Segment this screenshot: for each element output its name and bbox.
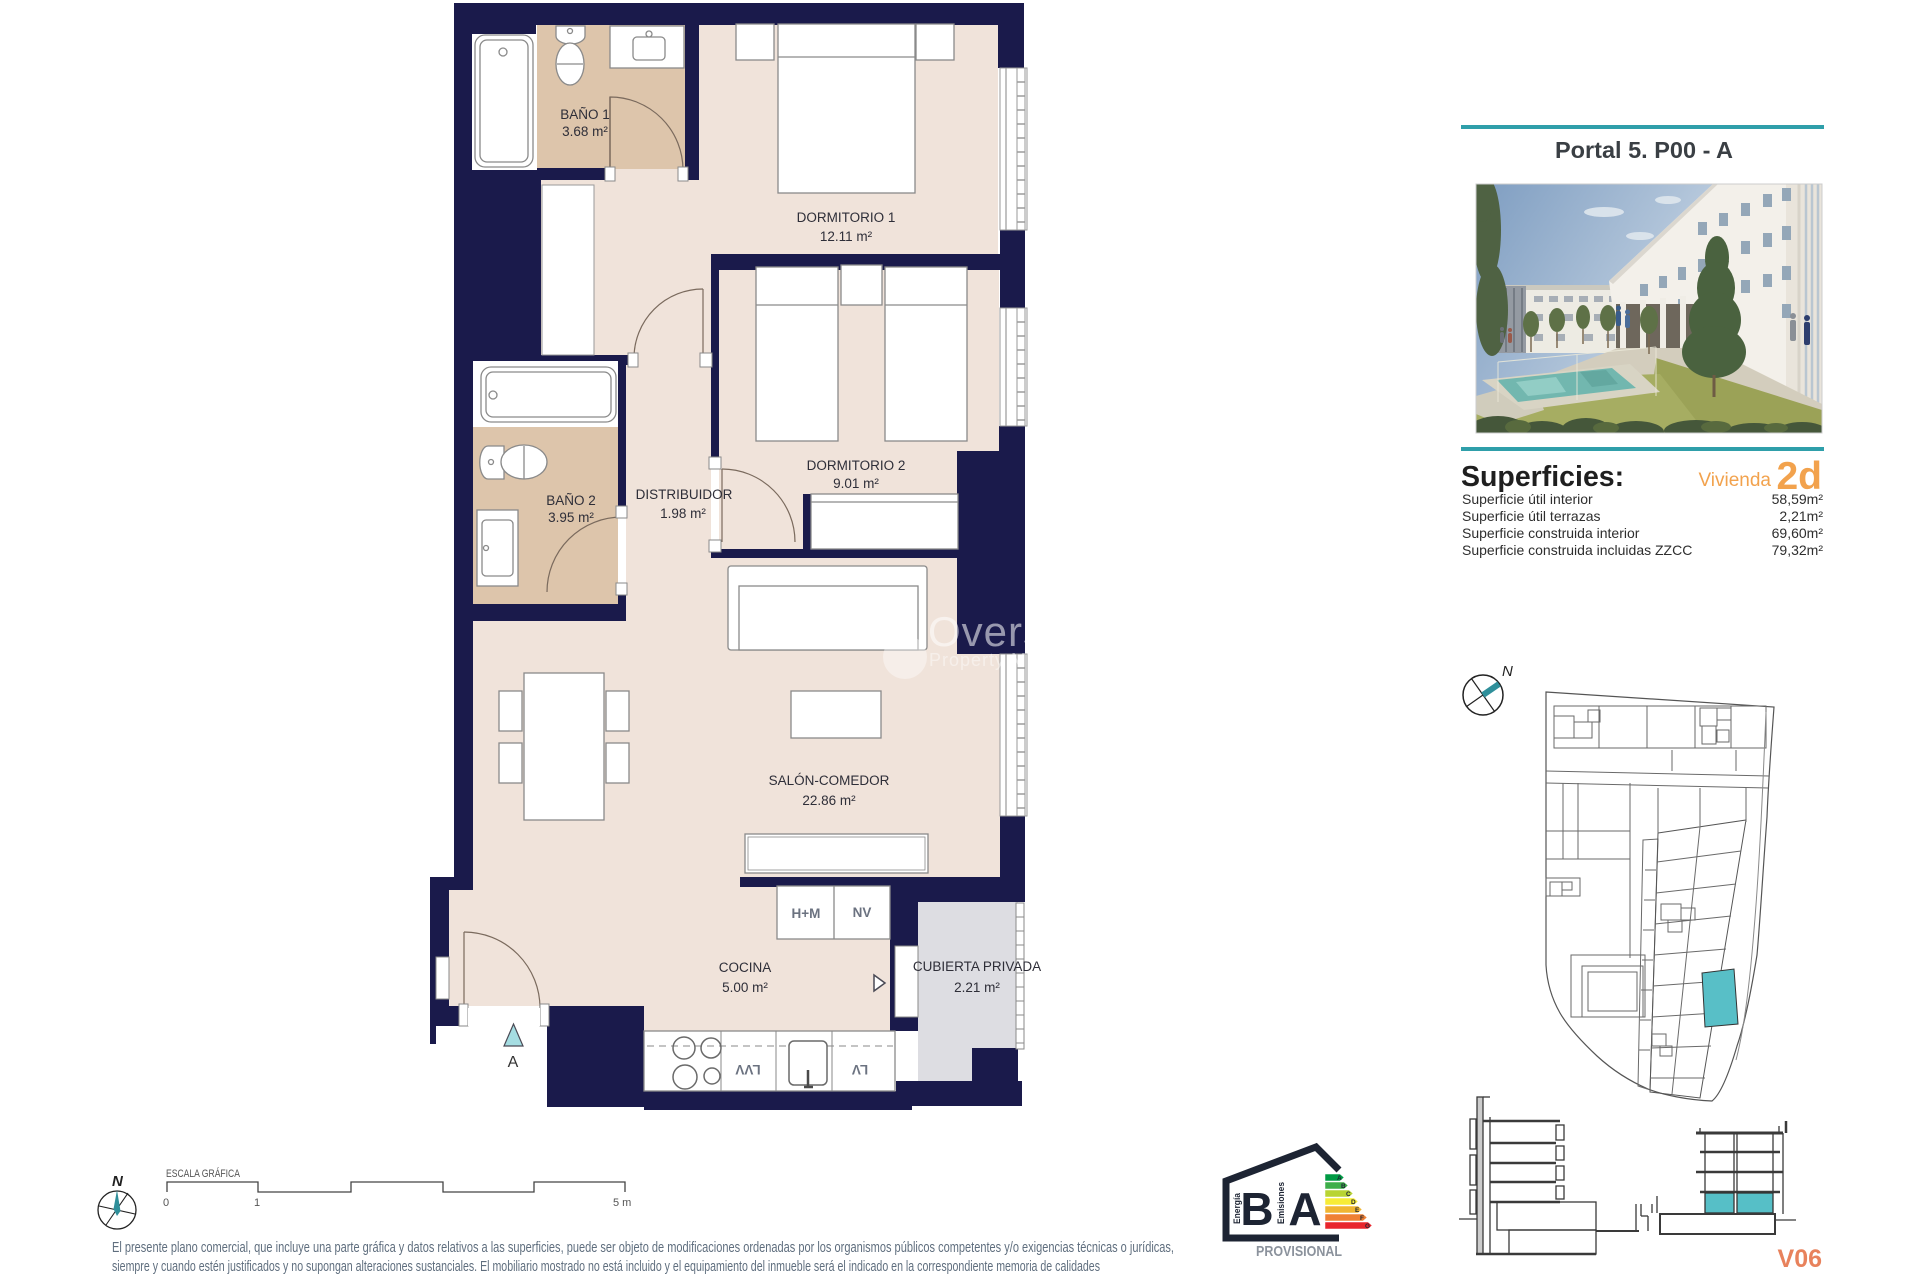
- svg-text:1.98 m²: 1.98 m²: [660, 506, 706, 521]
- svg-text:LV: LV: [852, 1062, 868, 1077]
- svg-text:PROVISIONAL: PROVISIONAL: [1256, 1243, 1342, 1260]
- svg-text:22.86 m²: 22.86 m²: [802, 793, 856, 808]
- svg-text:NV: NV: [853, 905, 872, 920]
- svg-text:Vivienda: Vivienda: [1698, 470, 1771, 491]
- svg-text:Superficies:: Superficies:: [1461, 461, 1624, 493]
- svg-text:H+M: H+M: [792, 906, 821, 921]
- svg-text:BAÑO 2: BAÑO 2: [546, 493, 596, 508]
- svg-text:Property Mana: Property Mana: [929, 650, 1060, 670]
- svg-text:2.21 m²: 2.21 m²: [954, 980, 1000, 995]
- svg-text:El presente plano comercial, q: El presente plano comercial, que incluye…: [112, 1240, 1174, 1256]
- svg-text:3.68 m²: 3.68 m²: [562, 124, 608, 139]
- svg-text:CUBIERTA PRIVADA: CUBIERTA PRIVADA: [913, 959, 1041, 974]
- svg-text:Superficie construida interior: Superficie construida interior: [1462, 525, 1640, 541]
- svg-text:2,21m²: 2,21m²: [1779, 508, 1823, 524]
- svg-text:B: B: [1341, 1183, 1346, 1190]
- svg-text:5.00 m²: 5.00 m²: [722, 980, 768, 995]
- svg-text:DORMITORIO 1: DORMITORIO 1: [797, 210, 896, 225]
- svg-text:Superficie útil terrazas: Superficie útil terrazas: [1462, 508, 1601, 524]
- svg-text:1: 1: [254, 1197, 260, 1209]
- svg-text:Superficie útil interior: Superficie útil interior: [1462, 491, 1593, 507]
- svg-text:9.01 m²: 9.01 m²: [833, 476, 879, 491]
- svg-text:BAÑO 1: BAÑO 1: [560, 107, 610, 122]
- svg-text:siempre y cuando estén justifi: siempre y cuando estén justificados y no…: [112, 1259, 1100, 1275]
- svg-text:3.95 m²: 3.95 m²: [548, 510, 594, 525]
- svg-text:N: N: [112, 1173, 124, 1190]
- svg-text:5 m: 5 m: [613, 1197, 631, 1209]
- svg-text:Superficie construida incluida: Superficie construida incluidas ZZCC: [1462, 542, 1692, 558]
- svg-text:LVV: LVV: [735, 1062, 760, 1077]
- svg-text:Energía: Energía: [1232, 1192, 1242, 1224]
- svg-text:B: B: [1240, 1183, 1273, 1235]
- svg-text:Emisiones: Emisiones: [1276, 1182, 1286, 1224]
- svg-text:SALÓN-COMEDOR: SALÓN-COMEDOR: [769, 773, 890, 788]
- svg-text:G: G: [1365, 1223, 1370, 1230]
- svg-text:E: E: [1355, 1207, 1360, 1214]
- svg-text:F: F: [1360, 1215, 1364, 1222]
- svg-text:0: 0: [163, 1197, 169, 1209]
- svg-text:79,32m²: 79,32m²: [1772, 542, 1824, 558]
- svg-text:D: D: [1351, 1199, 1356, 1206]
- svg-text:DORMITORIO 2: DORMITORIO 2: [807, 458, 906, 473]
- svg-text:A: A: [508, 1054, 519, 1071]
- svg-text:12.11 m²: 12.11 m²: [820, 229, 873, 244]
- svg-text:N: N: [1502, 663, 1513, 680]
- svg-text:V06: V06: [1778, 1245, 1822, 1273]
- svg-text:58,59m²: 58,59m²: [1772, 491, 1824, 507]
- svg-text:ESCALA GRÁFICA: ESCALA GRÁFICA: [166, 1167, 241, 1180]
- svg-text:COCINA: COCINA: [719, 960, 772, 975]
- svg-text:DISTRIBUIDOR: DISTRIBUIDOR: [636, 487, 733, 502]
- svg-text:Portal 5. P00 - A: Portal 5. P00 - A: [1555, 137, 1733, 163]
- svg-text:Overseas: Overseas: [928, 608, 1116, 655]
- svg-text:C: C: [1346, 1191, 1351, 1198]
- svg-text:A: A: [1337, 1175, 1342, 1182]
- svg-text:69,60m²: 69,60m²: [1772, 525, 1824, 541]
- svg-text:A: A: [1288, 1183, 1321, 1235]
